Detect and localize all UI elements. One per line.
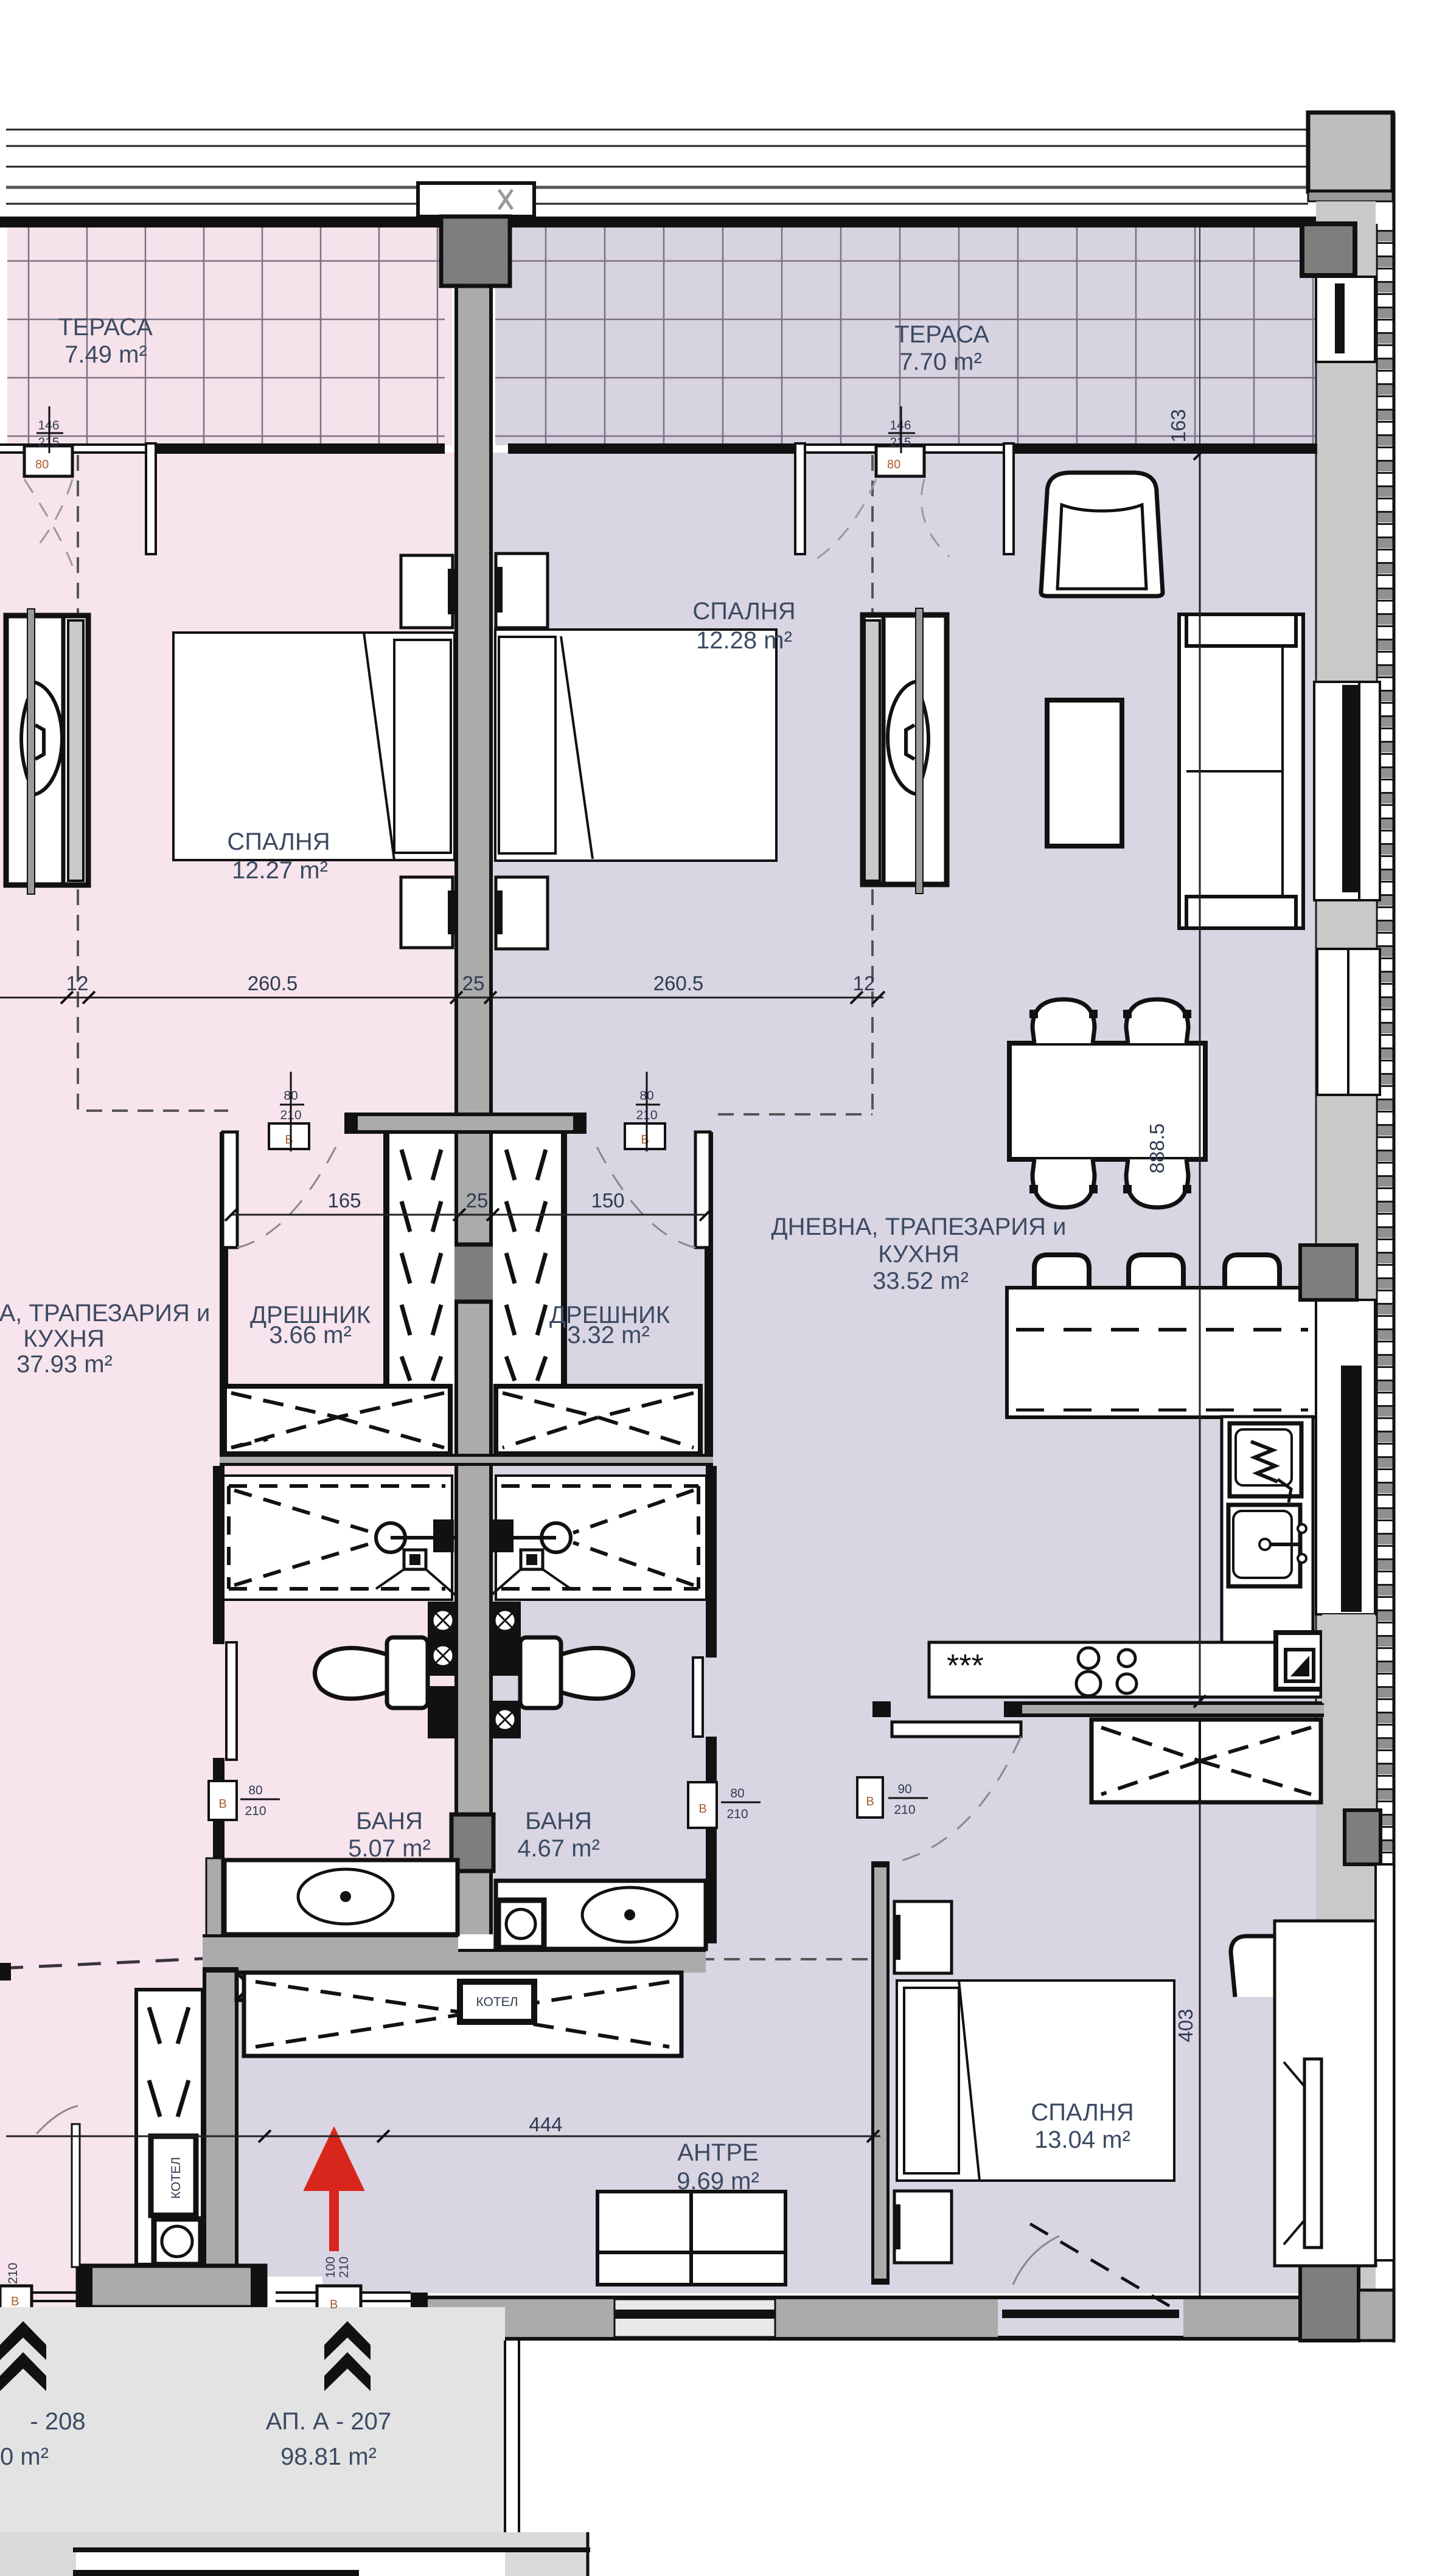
svg-text:25: 25 bbox=[466, 1189, 489, 1212]
svg-text:25: 25 bbox=[462, 972, 485, 995]
svg-text:В: В bbox=[641, 1133, 649, 1147]
svg-text:163: 163 bbox=[1167, 409, 1189, 442]
svg-text:А, ТРАПЕЗАРИЯ и: А, ТРАПЕЗАРИЯ и bbox=[0, 1300, 210, 1327]
svg-text:СПАЛНЯ: СПАЛНЯ bbox=[227, 828, 330, 855]
svg-text:В: В bbox=[698, 1802, 706, 1816]
svg-text:БАНЯ: БАНЯ bbox=[356, 1808, 423, 1835]
svg-text:80: 80 bbox=[887, 458, 900, 471]
svg-text:98.81 m²: 98.81 m² bbox=[280, 2443, 377, 2470]
svg-text:В: В bbox=[285, 1133, 293, 1147]
svg-text:210: 210 bbox=[894, 1803, 915, 1817]
svg-text:В: В bbox=[866, 1795, 874, 1808]
svg-text:150: 150 bbox=[591, 1189, 624, 1212]
svg-text:888.5: 888.5 bbox=[1146, 1123, 1168, 1174]
svg-text:ДНЕВНА, ТРАПЕЗАРИЯ и: ДНЕВНА, ТРАПЕЗАРИЯ и bbox=[771, 1213, 1067, 1240]
svg-text:АНТРЕ: АНТРЕ bbox=[677, 2139, 758, 2166]
svg-text:КУХНЯ: КУХНЯ bbox=[878, 1241, 959, 1268]
svg-text:100: 100 bbox=[324, 2257, 338, 2278]
svg-text:12.27 m²: 12.27 m² bbox=[232, 857, 328, 884]
svg-text:0 m²: 0 m² bbox=[0, 2443, 49, 2470]
svg-text:В: В bbox=[218, 1797, 226, 1811]
svg-text:80: 80 bbox=[35, 458, 49, 471]
svg-text:90: 90 bbox=[897, 1782, 911, 1796]
svg-text:210: 210 bbox=[337, 2257, 351, 2278]
svg-text:КОТЕЛ: КОТЕЛ bbox=[476, 1995, 518, 2009]
svg-text:***: *** bbox=[947, 1648, 984, 1684]
svg-text:403: 403 bbox=[1174, 2008, 1197, 2042]
svg-text:В: В bbox=[330, 2298, 338, 2311]
svg-text:3.66 m²: 3.66 m² bbox=[269, 1322, 352, 1349]
svg-text:13.04 m²: 13.04 m² bbox=[1034, 2126, 1130, 2153]
svg-text:БАНЯ: БАНЯ bbox=[525, 1808, 592, 1835]
svg-text:СПАЛНЯ: СПАЛНЯ bbox=[1031, 2099, 1133, 2126]
svg-text:КОТЕЛ: КОТЕЛ bbox=[169, 2157, 183, 2199]
svg-text:В: В bbox=[11, 2295, 19, 2308]
svg-text:КУХНЯ: КУХНЯ bbox=[23, 1325, 105, 1352]
svg-text:АП. А - 207: АП. А - 207 bbox=[266, 2408, 391, 2435]
svg-text:- 208: - 208 bbox=[30, 2408, 85, 2435]
svg-text:3.32 m²: 3.32 m² bbox=[567, 1322, 650, 1349]
svg-text:ТЕРАСА: ТЕРАСА bbox=[894, 321, 989, 348]
svg-text:37.93 m²: 37.93 m² bbox=[16, 1351, 113, 1378]
svg-text:12: 12 bbox=[853, 972, 876, 995]
svg-text:210: 210 bbox=[6, 2263, 20, 2284]
svg-text:444: 444 bbox=[529, 2113, 562, 2136]
svg-text:12: 12 bbox=[66, 972, 89, 995]
svg-text:4.67 m²: 4.67 m² bbox=[517, 1835, 600, 1862]
svg-text:ТЕРАСА: ТЕРАСА bbox=[58, 314, 153, 341]
svg-text:7.70 m²: 7.70 m² bbox=[899, 349, 982, 375]
svg-text:80: 80 bbox=[730, 1786, 744, 1800]
svg-text:33.52 m²: 33.52 m² bbox=[872, 1268, 969, 1294]
svg-text:210: 210 bbox=[726, 1807, 748, 1821]
svg-text:9.69 m²: 9.69 m² bbox=[677, 2168, 759, 2195]
svg-text:12.28 m²: 12.28 m² bbox=[696, 627, 792, 654]
svg-text:260.5: 260.5 bbox=[653, 972, 704, 995]
svg-text:СПАЛНЯ: СПАЛНЯ bbox=[692, 598, 795, 625]
svg-text:80: 80 bbox=[248, 1783, 262, 1797]
svg-text:165: 165 bbox=[327, 1189, 361, 1212]
svg-text:260.5: 260.5 bbox=[248, 972, 298, 995]
svg-text:5.07 m²: 5.07 m² bbox=[348, 1835, 431, 1862]
svg-text:210: 210 bbox=[245, 1804, 266, 1818]
svg-text:7.49 m²: 7.49 m² bbox=[64, 341, 147, 368]
